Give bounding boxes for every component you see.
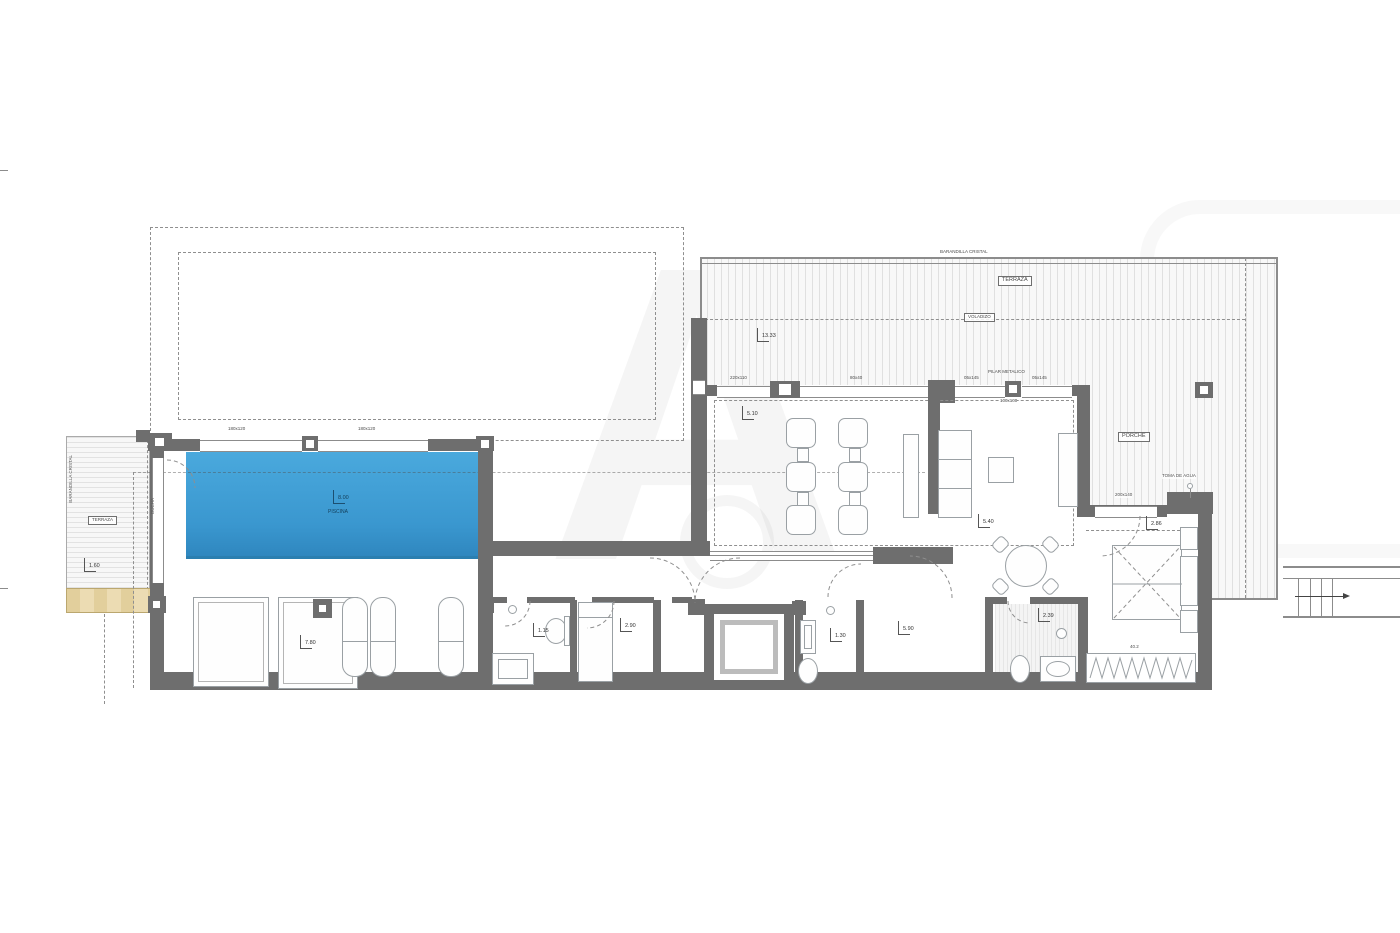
terrace-edge-left bbox=[700, 257, 702, 319]
porche-label: PORCHE bbox=[1118, 432, 1150, 442]
window-label: 200x140 bbox=[1115, 493, 1132, 498]
stairs-arrow-head bbox=[1343, 593, 1350, 599]
window bbox=[955, 386, 1005, 398]
roof-outline-inner bbox=[178, 252, 656, 420]
sun-lounger bbox=[438, 597, 464, 677]
sofa bbox=[938, 430, 972, 518]
toilet bbox=[1010, 655, 1030, 683]
headboard-cushion bbox=[1180, 556, 1198, 606]
coffee-table bbox=[988, 457, 1014, 483]
stairs-arrow-line bbox=[1295, 596, 1343, 597]
wall-window bbox=[693, 380, 705, 395]
window-label: 220x110 bbox=[730, 376, 747, 381]
side-table bbox=[797, 448, 809, 462]
dim-bed-right: 2.86 bbox=[1146, 516, 1158, 530]
window bbox=[800, 386, 928, 398]
side-table bbox=[797, 492, 809, 506]
dining-chair bbox=[991, 577, 1011, 597]
armchair bbox=[786, 462, 816, 492]
column bbox=[148, 596, 166, 613]
wall bbox=[691, 318, 707, 546]
tick-left-bottom bbox=[0, 588, 8, 589]
stair-riser bbox=[1310, 578, 1311, 617]
wall bbox=[873, 547, 953, 564]
terrace-left-dash bbox=[147, 440, 148, 590]
wall bbox=[1030, 597, 1085, 604]
single-bed bbox=[578, 602, 613, 682]
stairs-edge bbox=[1283, 578, 1400, 579]
wall bbox=[428, 439, 480, 451]
stair-riser bbox=[1321, 578, 1322, 617]
headboard-cushion bbox=[1180, 610, 1198, 633]
window bbox=[200, 440, 302, 452]
floor-plan: A bbox=[0, 0, 1400, 933]
column bbox=[302, 436, 318, 451]
dim-pool: 8.00 bbox=[333, 490, 345, 504]
armchair bbox=[838, 462, 868, 492]
symbol-circle bbox=[508, 605, 517, 614]
terrace-rail-inner bbox=[700, 263, 1278, 264]
armchair bbox=[786, 505, 816, 535]
property-line bbox=[104, 614, 105, 704]
terrace-door bbox=[152, 458, 164, 583]
wall bbox=[707, 385, 717, 396]
roof-dash-left bbox=[133, 472, 134, 688]
kitchen-counter bbox=[1058, 433, 1078, 507]
stair-riser bbox=[1298, 578, 1299, 617]
stairs-edge bbox=[1283, 616, 1400, 618]
dim-terrace-left: 1.60 bbox=[84, 558, 96, 572]
toilet-tank bbox=[564, 616, 570, 646]
barandilla-top-label: BARANDILLA CRISTAL bbox=[940, 250, 988, 255]
window bbox=[717, 386, 770, 398]
side-table bbox=[849, 492, 861, 506]
symbol-circle bbox=[826, 606, 835, 615]
dim-terrace: 13.33 bbox=[757, 328, 769, 342]
dim-bath-left: 1.15 bbox=[533, 623, 545, 637]
armchair bbox=[786, 418, 816, 448]
pilar-size-label: 100x100 bbox=[1000, 399, 1017, 404]
column bbox=[313, 599, 332, 618]
window-label: 05x145 bbox=[1032, 376, 1047, 381]
sideboard bbox=[903, 434, 919, 518]
wall bbox=[653, 600, 661, 690]
column bbox=[688, 599, 705, 615]
swimming-pool bbox=[186, 452, 478, 556]
stair-riser bbox=[1332, 578, 1333, 617]
column bbox=[136, 430, 150, 442]
voladizo-line-right bbox=[1245, 258, 1246, 598]
dim-salon: 5.10 bbox=[742, 406, 754, 420]
wardrobe bbox=[1086, 653, 1196, 683]
sink-vanity bbox=[800, 620, 816, 654]
wall bbox=[478, 541, 710, 556]
window-label: 05x145 bbox=[964, 376, 979, 381]
sun-lounger bbox=[370, 597, 396, 677]
armchair bbox=[838, 505, 868, 535]
column bbox=[1195, 382, 1213, 398]
sliding-door-mid bbox=[710, 555, 873, 556]
tick-left-top bbox=[0, 170, 8, 171]
wall bbox=[570, 600, 577, 690]
sink-vanity bbox=[492, 653, 534, 685]
piscina-label: PISCINA bbox=[328, 510, 348, 515]
pilar-metalico-label: PILAR METALICO bbox=[988, 370, 1025, 375]
window-label: 180x120 bbox=[358, 427, 375, 432]
sand-strip bbox=[66, 588, 152, 613]
stairs-edge bbox=[1283, 566, 1400, 568]
sliding-door bbox=[710, 551, 873, 561]
headboard-cushion bbox=[1180, 527, 1198, 550]
planter bbox=[193, 597, 269, 687]
column bbox=[476, 436, 494, 451]
toma-de-agua-label: TOMA DE AGUA bbox=[1162, 474, 1196, 479]
terraza-top-label: TERRAZA bbox=[998, 276, 1032, 286]
terrace-rail bbox=[700, 257, 1278, 259]
wall bbox=[478, 556, 493, 690]
terrace-edge-right bbox=[1276, 257, 1278, 599]
wall bbox=[478, 450, 493, 555]
wall bbox=[1198, 505, 1212, 690]
wall bbox=[493, 597, 507, 603]
wall bbox=[1077, 385, 1090, 510]
window-label: 180x120 bbox=[228, 427, 245, 432]
sun-lounger bbox=[342, 597, 368, 677]
sink-vanity bbox=[1040, 656, 1076, 682]
steel-pillar bbox=[1005, 381, 1021, 397]
wall bbox=[985, 600, 993, 690]
dining-chair bbox=[1041, 577, 1061, 597]
window bbox=[1022, 386, 1072, 398]
dining-table bbox=[1005, 545, 1047, 587]
pool-edge bbox=[186, 556, 478, 559]
dim-bath-right: 2.39 bbox=[1038, 608, 1050, 622]
elevator-car bbox=[720, 620, 778, 674]
toilet bbox=[798, 658, 818, 684]
side-table bbox=[849, 448, 861, 462]
armchair bbox=[838, 418, 868, 448]
symbol-circle bbox=[1056, 628, 1067, 639]
ducha-label: DUCHA bbox=[150, 498, 155, 514]
window-label: 80x40 bbox=[850, 376, 862, 381]
terrace-left-area bbox=[66, 436, 150, 594]
column bbox=[148, 433, 172, 451]
salon-ceiling-dash bbox=[714, 400, 1074, 546]
wall bbox=[856, 600, 864, 688]
column bbox=[478, 597, 494, 613]
dim-bath-mid: 1.30 bbox=[830, 628, 842, 642]
voladizo-label: VOLADIZO bbox=[964, 313, 995, 322]
wall bbox=[527, 597, 575, 603]
double-bed bbox=[1112, 545, 1182, 620]
water-tap-stem bbox=[1190, 489, 1191, 498]
dim-bed-center: 2.90 bbox=[620, 618, 632, 632]
dim-deck: 7.80 bbox=[300, 635, 312, 649]
dim-hall: 5.90 bbox=[898, 621, 910, 635]
column bbox=[770, 381, 800, 398]
window bbox=[318, 440, 428, 452]
terraza-left-label: TERRAZA bbox=[88, 516, 117, 525]
barandilla-left-label: BARANDILLA CRISTAL bbox=[68, 455, 73, 503]
dim-dining: 5.40 bbox=[978, 514, 990, 528]
wardrobe-dim: 40.2 bbox=[1130, 645, 1139, 650]
bedroom-dash bbox=[1086, 530, 1180, 531]
